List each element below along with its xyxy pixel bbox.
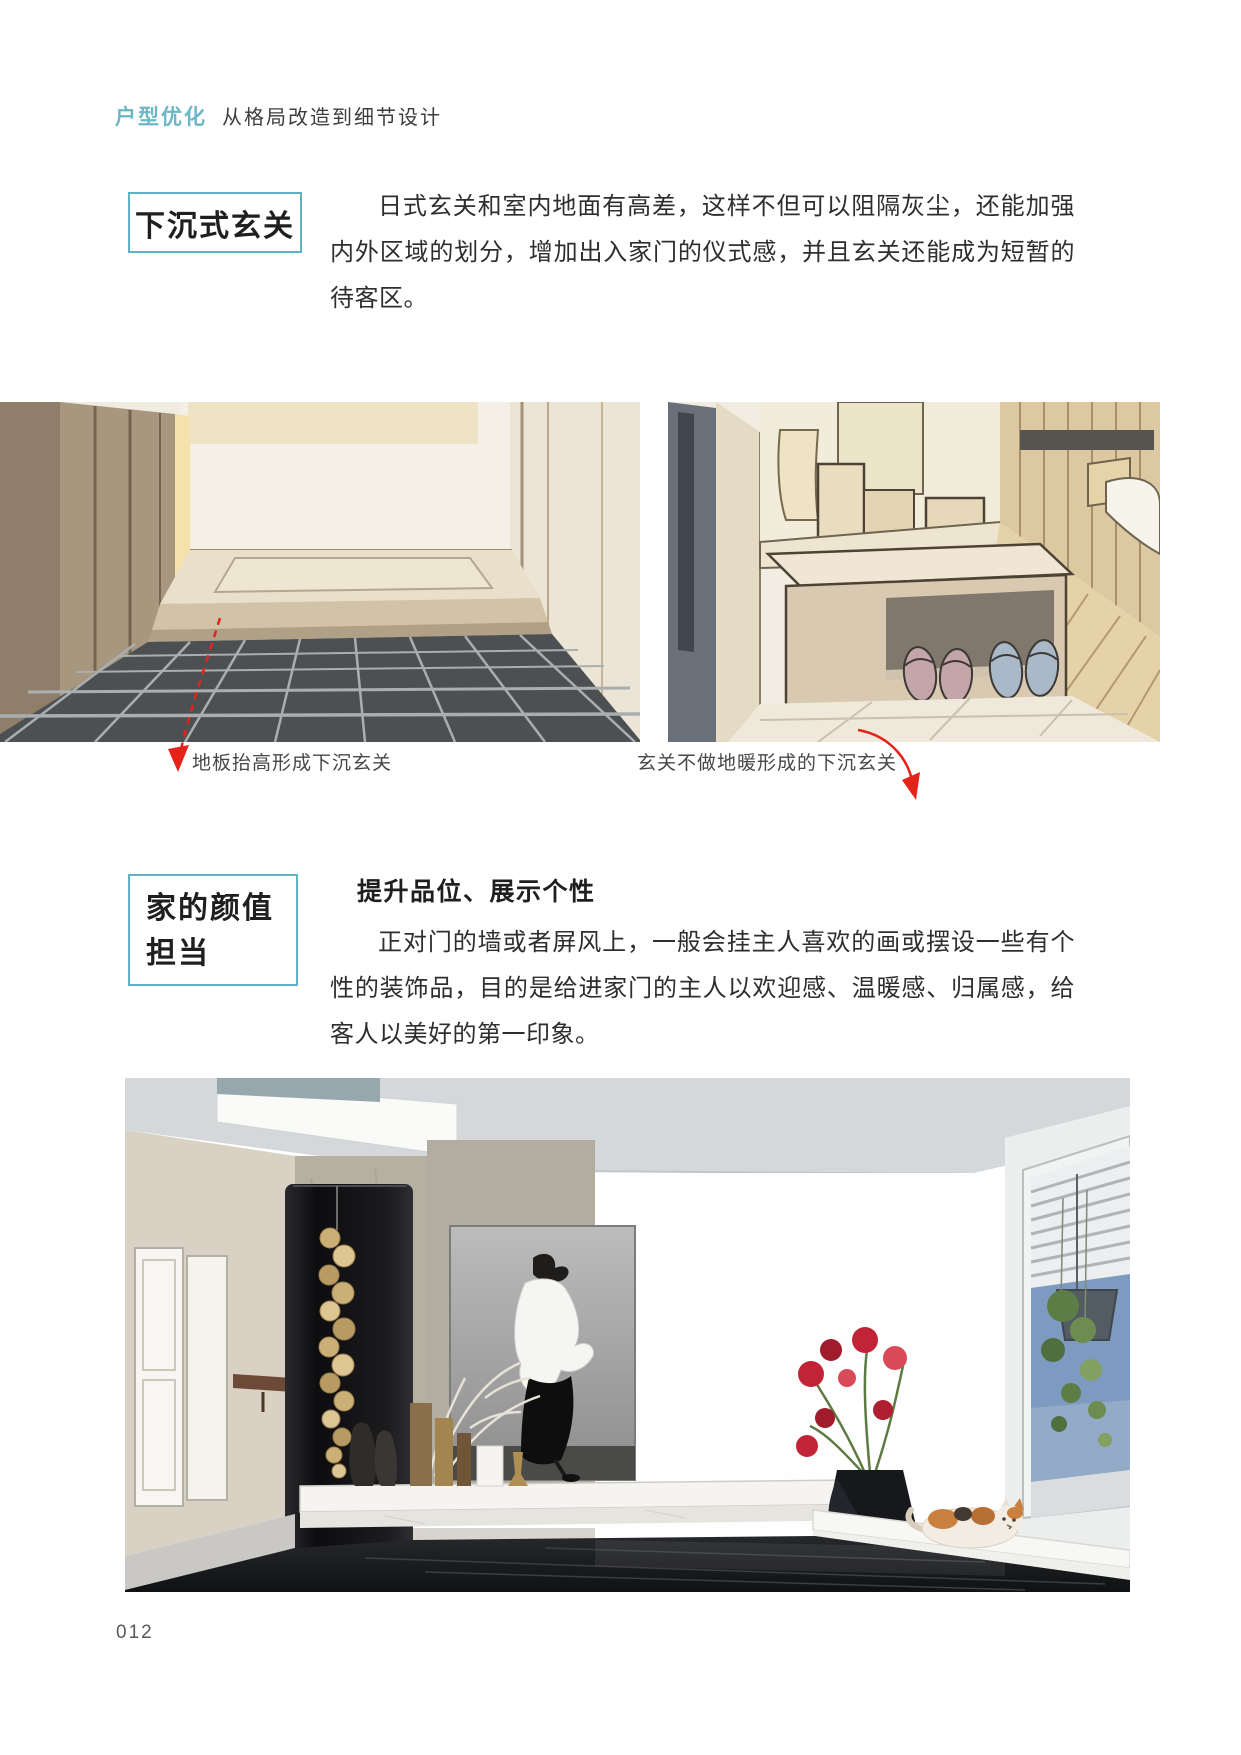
section2-paragraph: 正对门的墙或者屏风上，一般会挂主人喜欢的画或摆设一些有个性的装饰品，目的是给进家…: [330, 920, 1075, 1058]
section2-title-box: 家的颜值 担当: [128, 874, 298, 986]
header-highlight: 户型优化: [115, 101, 207, 131]
book-page: 户型优化 从格局改造到细节设计 下沉式玄关 日式玄关和室内地面有高差，这样不但可…: [0, 0, 1241, 1755]
figure-entry-hall-render: [125, 1078, 1130, 1592]
figure1-caption: 地板抬高形成下沉玄关: [192, 748, 392, 775]
section1-paragraph: 日式玄关和室内地面有高差，这样不但可以阻隔灰尘，还能加强内外区域的划分，增加出入…: [330, 184, 1075, 322]
entry-hall-illustration: [125, 1078, 1130, 1592]
page-number: 012: [116, 1622, 154, 1644]
section2-title-line1: 家的颜值: [146, 886, 296, 931]
red-curved-arrow-icon: [852, 712, 924, 806]
section2-title-line2: 担当: [146, 931, 296, 976]
header-subtitle: 从格局改造到细节设计: [222, 101, 442, 130]
marble-ledge: [300, 1480, 881, 1528]
section2-heading: 提升品位、展示个性: [357, 872, 596, 908]
black-partition: [285, 1184, 413, 1592]
figure-entry-bench-slippers: [668, 402, 1160, 742]
running-header: 户型优化 从格局改造到细节设计: [115, 101, 442, 131]
figure-sunken-entry-tiles: [0, 402, 640, 742]
entry-bench-illustration: [668, 402, 1160, 742]
sunken-entry-illustration: [0, 402, 640, 742]
section1-title-box: 下沉式玄关: [128, 192, 302, 253]
artwork-woman: [450, 1226, 635, 1482]
section1-title: 下沉式玄关: [135, 201, 295, 245]
